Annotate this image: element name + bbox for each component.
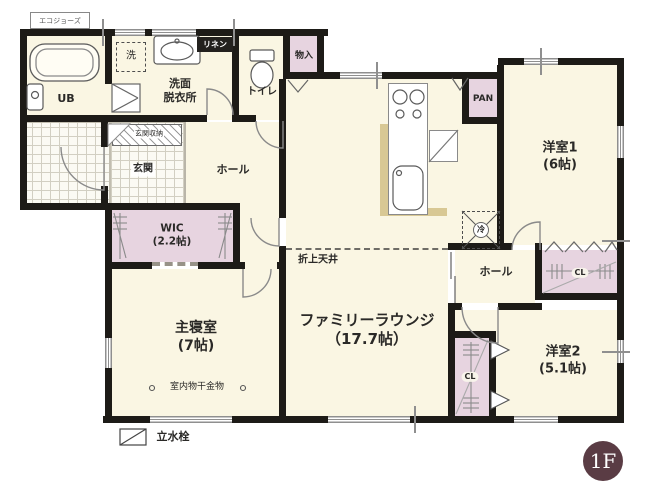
dimension-tick <box>376 62 378 89</box>
closet1-label: CL <box>572 268 589 278</box>
window <box>105 338 112 368</box>
hall-left-label: ホール <box>217 163 250 177</box>
fridge-label: 冷 <box>477 225 485 235</box>
room-corridor <box>240 203 279 269</box>
entrance-step-line <box>184 122 186 207</box>
dimension-tick <box>233 19 235 46</box>
window <box>617 126 624 158</box>
wall <box>198 262 245 269</box>
room-ub <box>24 34 108 120</box>
entrance-storage-label: 玄関収納 <box>134 130 164 139</box>
family-lounge-label: ファミリーラウンジ （17.7帖） <box>299 311 434 349</box>
window <box>150 416 232 423</box>
coffered-ceiling-label: 折上天井 <box>298 255 338 268</box>
wall <box>20 115 110 122</box>
cupboard <box>429 130 458 162</box>
window <box>328 416 410 423</box>
washer-label: 洗 <box>126 51 136 64</box>
dimension-tick <box>602 351 630 353</box>
floor-plan: エコジョーズ UB 洗 リネン 洗面 脱衣所 トイレ 物入 PAN 洋室1 (6… <box>0 0 652 499</box>
wic-label: WIC (2.2帖) <box>153 223 192 250</box>
wall <box>110 115 207 122</box>
bedroom1-label: 洋室1 (6帖) <box>542 140 577 173</box>
wall <box>232 36 239 122</box>
wic-open-doorway <box>152 262 198 266</box>
wall <box>277 262 286 269</box>
porch-tile <box>22 122 110 210</box>
window <box>152 29 196 36</box>
wall <box>105 203 112 416</box>
coffered-ceiling-line <box>286 248 448 250</box>
wall <box>283 36 290 79</box>
storage-label: 物入 <box>295 51 313 63</box>
dimension-tick <box>540 48 542 75</box>
entrance-label: 玄関 <box>131 164 155 177</box>
bedroom2-label: 洋室2 (5.1帖) <box>539 344 587 377</box>
wall <box>101 186 108 210</box>
wall <box>233 203 240 269</box>
master-bedroom-label: 主寝室 (7帖) <box>175 320 217 356</box>
wall <box>317 29 324 79</box>
ub-label: UB <box>57 92 74 106</box>
wall <box>535 293 624 300</box>
washroom-label: 洗面 脱衣所 <box>164 77 197 105</box>
wall <box>279 246 286 416</box>
window <box>514 416 558 423</box>
dimension-tick <box>414 406 416 433</box>
pantry-label: PAN <box>473 94 493 106</box>
wall <box>535 243 542 300</box>
wall <box>448 331 496 338</box>
water-heater-label: エコジョーズ <box>39 16 81 26</box>
wall <box>498 303 542 310</box>
dimension-tick <box>102 19 104 46</box>
wall <box>105 29 112 84</box>
wall <box>498 58 624 65</box>
faucet-icon <box>120 429 146 445</box>
wall <box>101 122 108 147</box>
window <box>115 29 145 36</box>
closet2-label: CL <box>462 372 479 382</box>
dimension-tick <box>602 240 630 242</box>
hall-right-label: ホール <box>480 265 513 279</box>
kitchen-counter <box>388 83 428 215</box>
linen-label: リネン <box>203 39 227 50</box>
faucet-label: 立水栓 <box>157 430 190 444</box>
wall <box>105 262 152 269</box>
wall <box>279 79 286 218</box>
wall <box>239 115 256 122</box>
indoor-drying-label: 室内物干金物 <box>170 382 224 394</box>
wall <box>489 338 496 423</box>
floor-badge-text: 1F <box>590 449 617 473</box>
wall <box>20 203 240 210</box>
wall <box>448 303 455 423</box>
toilet-label: トイレ <box>247 87 277 100</box>
wall <box>462 117 504 124</box>
floor-badge: 1F <box>583 441 623 481</box>
